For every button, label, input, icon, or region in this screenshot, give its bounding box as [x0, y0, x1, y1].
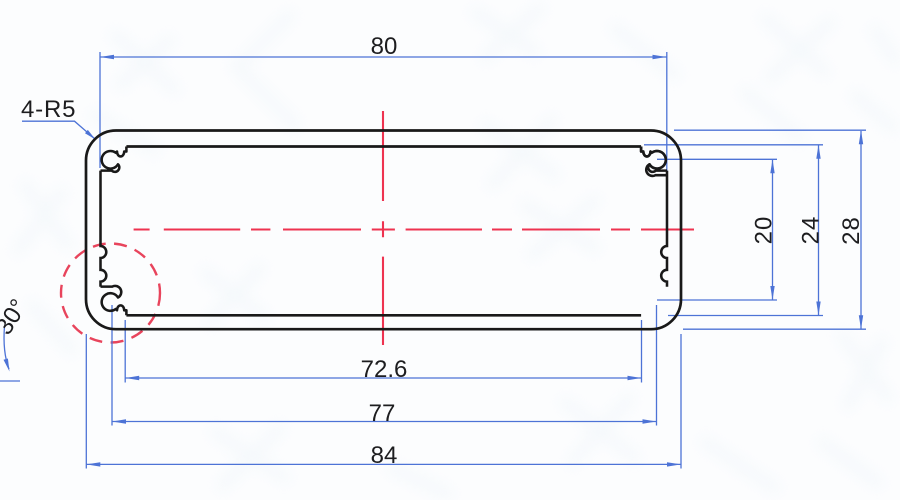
svg-text:4-R5: 4-R5	[21, 96, 76, 123]
svg-text:24: 24	[797, 216, 824, 245]
svg-text:28: 28	[838, 216, 865, 245]
svg-text:84: 84	[371, 442, 398, 469]
svg-text:77: 77	[369, 400, 396, 427]
svg-text:20: 20	[750, 216, 777, 245]
svg-text:80: 80	[371, 33, 398, 60]
svg-text:72.6: 72.6	[361, 356, 408, 383]
